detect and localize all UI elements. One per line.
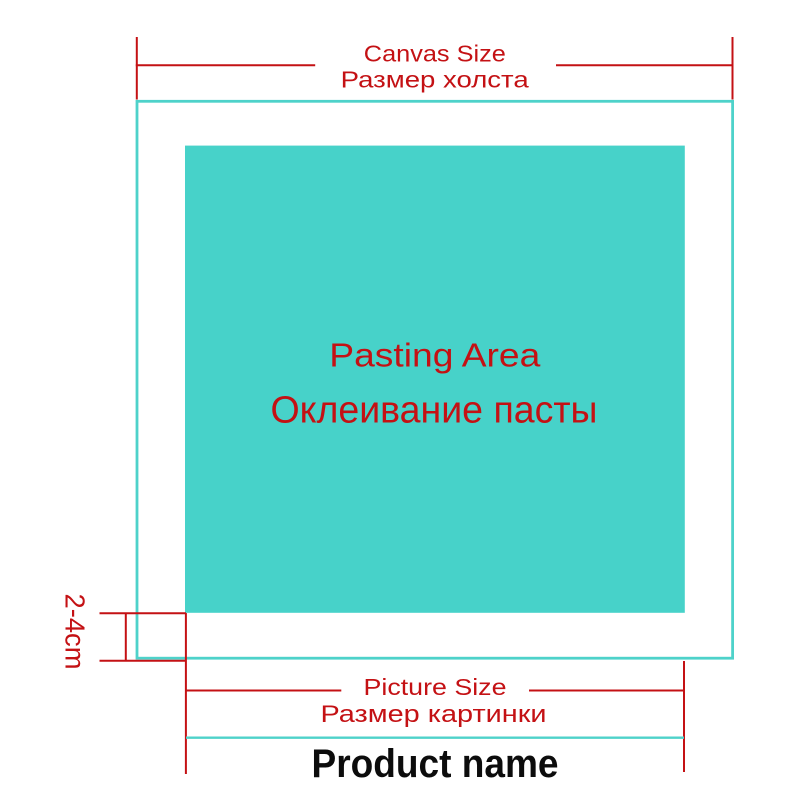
svg-text:Оклеивание пасты: Оклеивание пасты [271,390,598,432]
svg-text:Picture Size: Picture Size [364,674,507,700]
svg-text:Pasting Area: Pasting Area [329,337,540,374]
svg-text:Размер холста: Размер холста [341,66,530,92]
svg-text:Product name: Product name [312,742,559,786]
svg-text:Размер картинки: Размер картинки [321,701,547,728]
svg-text:Canvas Size: Canvas Size [364,41,506,67]
svg-text:2-4cm: 2-4cm [60,594,91,670]
